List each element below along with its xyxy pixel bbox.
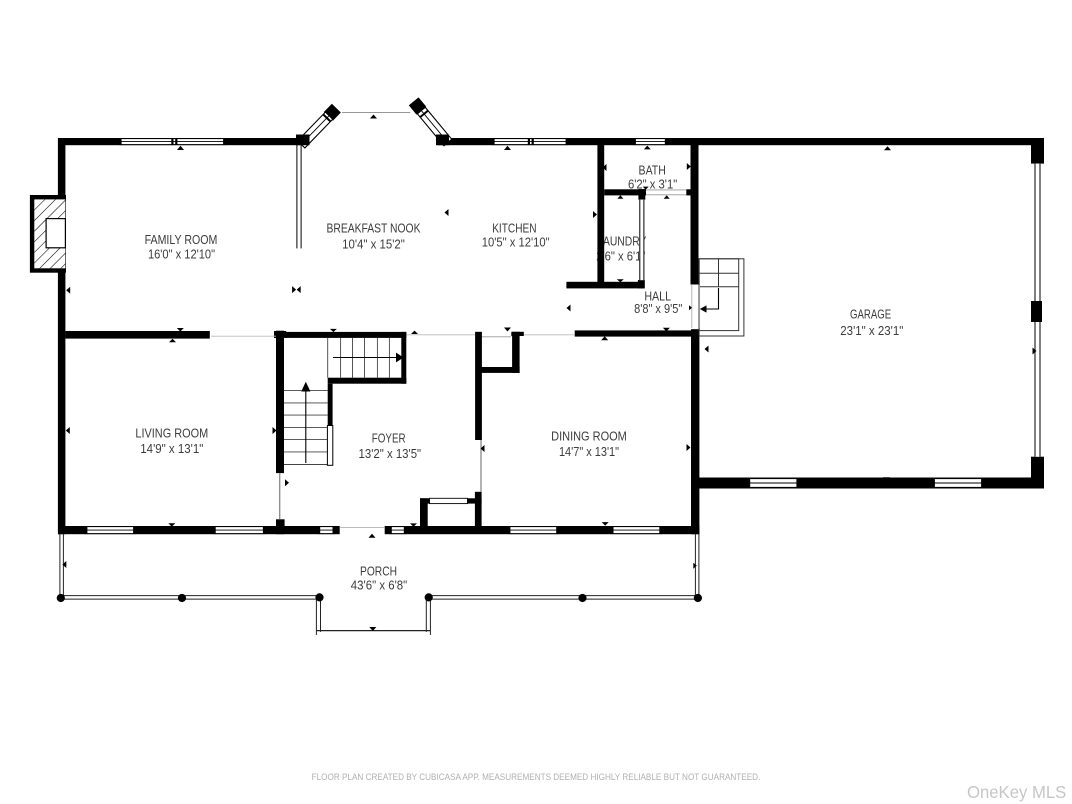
svg-text:6'2" x 3'1": 6'2" x 3'1" [628, 177, 678, 192]
svg-text:10'4" x 15'2": 10'4" x 15'2" [342, 237, 405, 252]
svg-text:FOYER: FOYER [372, 430, 406, 445]
svg-text:FLOOR PLAN CREATED BY CUBICASA: FLOOR PLAN CREATED BY CUBICASA APP. MEAS… [312, 772, 761, 783]
svg-text:14'9" x 13'1": 14'9" x 13'1" [140, 441, 203, 456]
svg-text:13'2" x 13'5": 13'2" x 13'5" [359, 446, 422, 461]
svg-text:16'0" x 12'10": 16'0" x 12'10" [148, 247, 215, 262]
svg-text:14'7" x 13'1": 14'7" x 13'1" [559, 444, 619, 459]
svg-text:BATH: BATH [639, 163, 666, 178]
svg-text:DINING ROOM: DINING ROOM [551, 429, 627, 444]
svg-text:KITCHEN: KITCHEN [492, 221, 536, 236]
svg-text:10'5" x 12'10": 10'5" x 12'10" [482, 235, 550, 250]
svg-text:LAUNDRY: LAUNDRY [597, 233, 646, 248]
svg-text:43'6" x 6'8": 43'6" x 6'8" [351, 578, 408, 593]
svg-text:LIVING ROOM: LIVING ROOM [135, 425, 208, 440]
svg-text:8'8" x 9'5": 8'8" x 9'5" [634, 301, 683, 316]
svg-text:FAMILY ROOM: FAMILY ROOM [145, 232, 218, 247]
svg-text:PORCH: PORCH [360, 563, 397, 578]
svg-text:BREAKFAST NOOK: BREAKFAST NOOK [327, 221, 421, 236]
svg-text:23'1" x 23'1": 23'1" x 23'1" [840, 323, 903, 338]
svg-text:OneKey MLS: OneKey MLS [967, 782, 1066, 802]
svg-text:GARAGE: GARAGE [850, 307, 891, 322]
